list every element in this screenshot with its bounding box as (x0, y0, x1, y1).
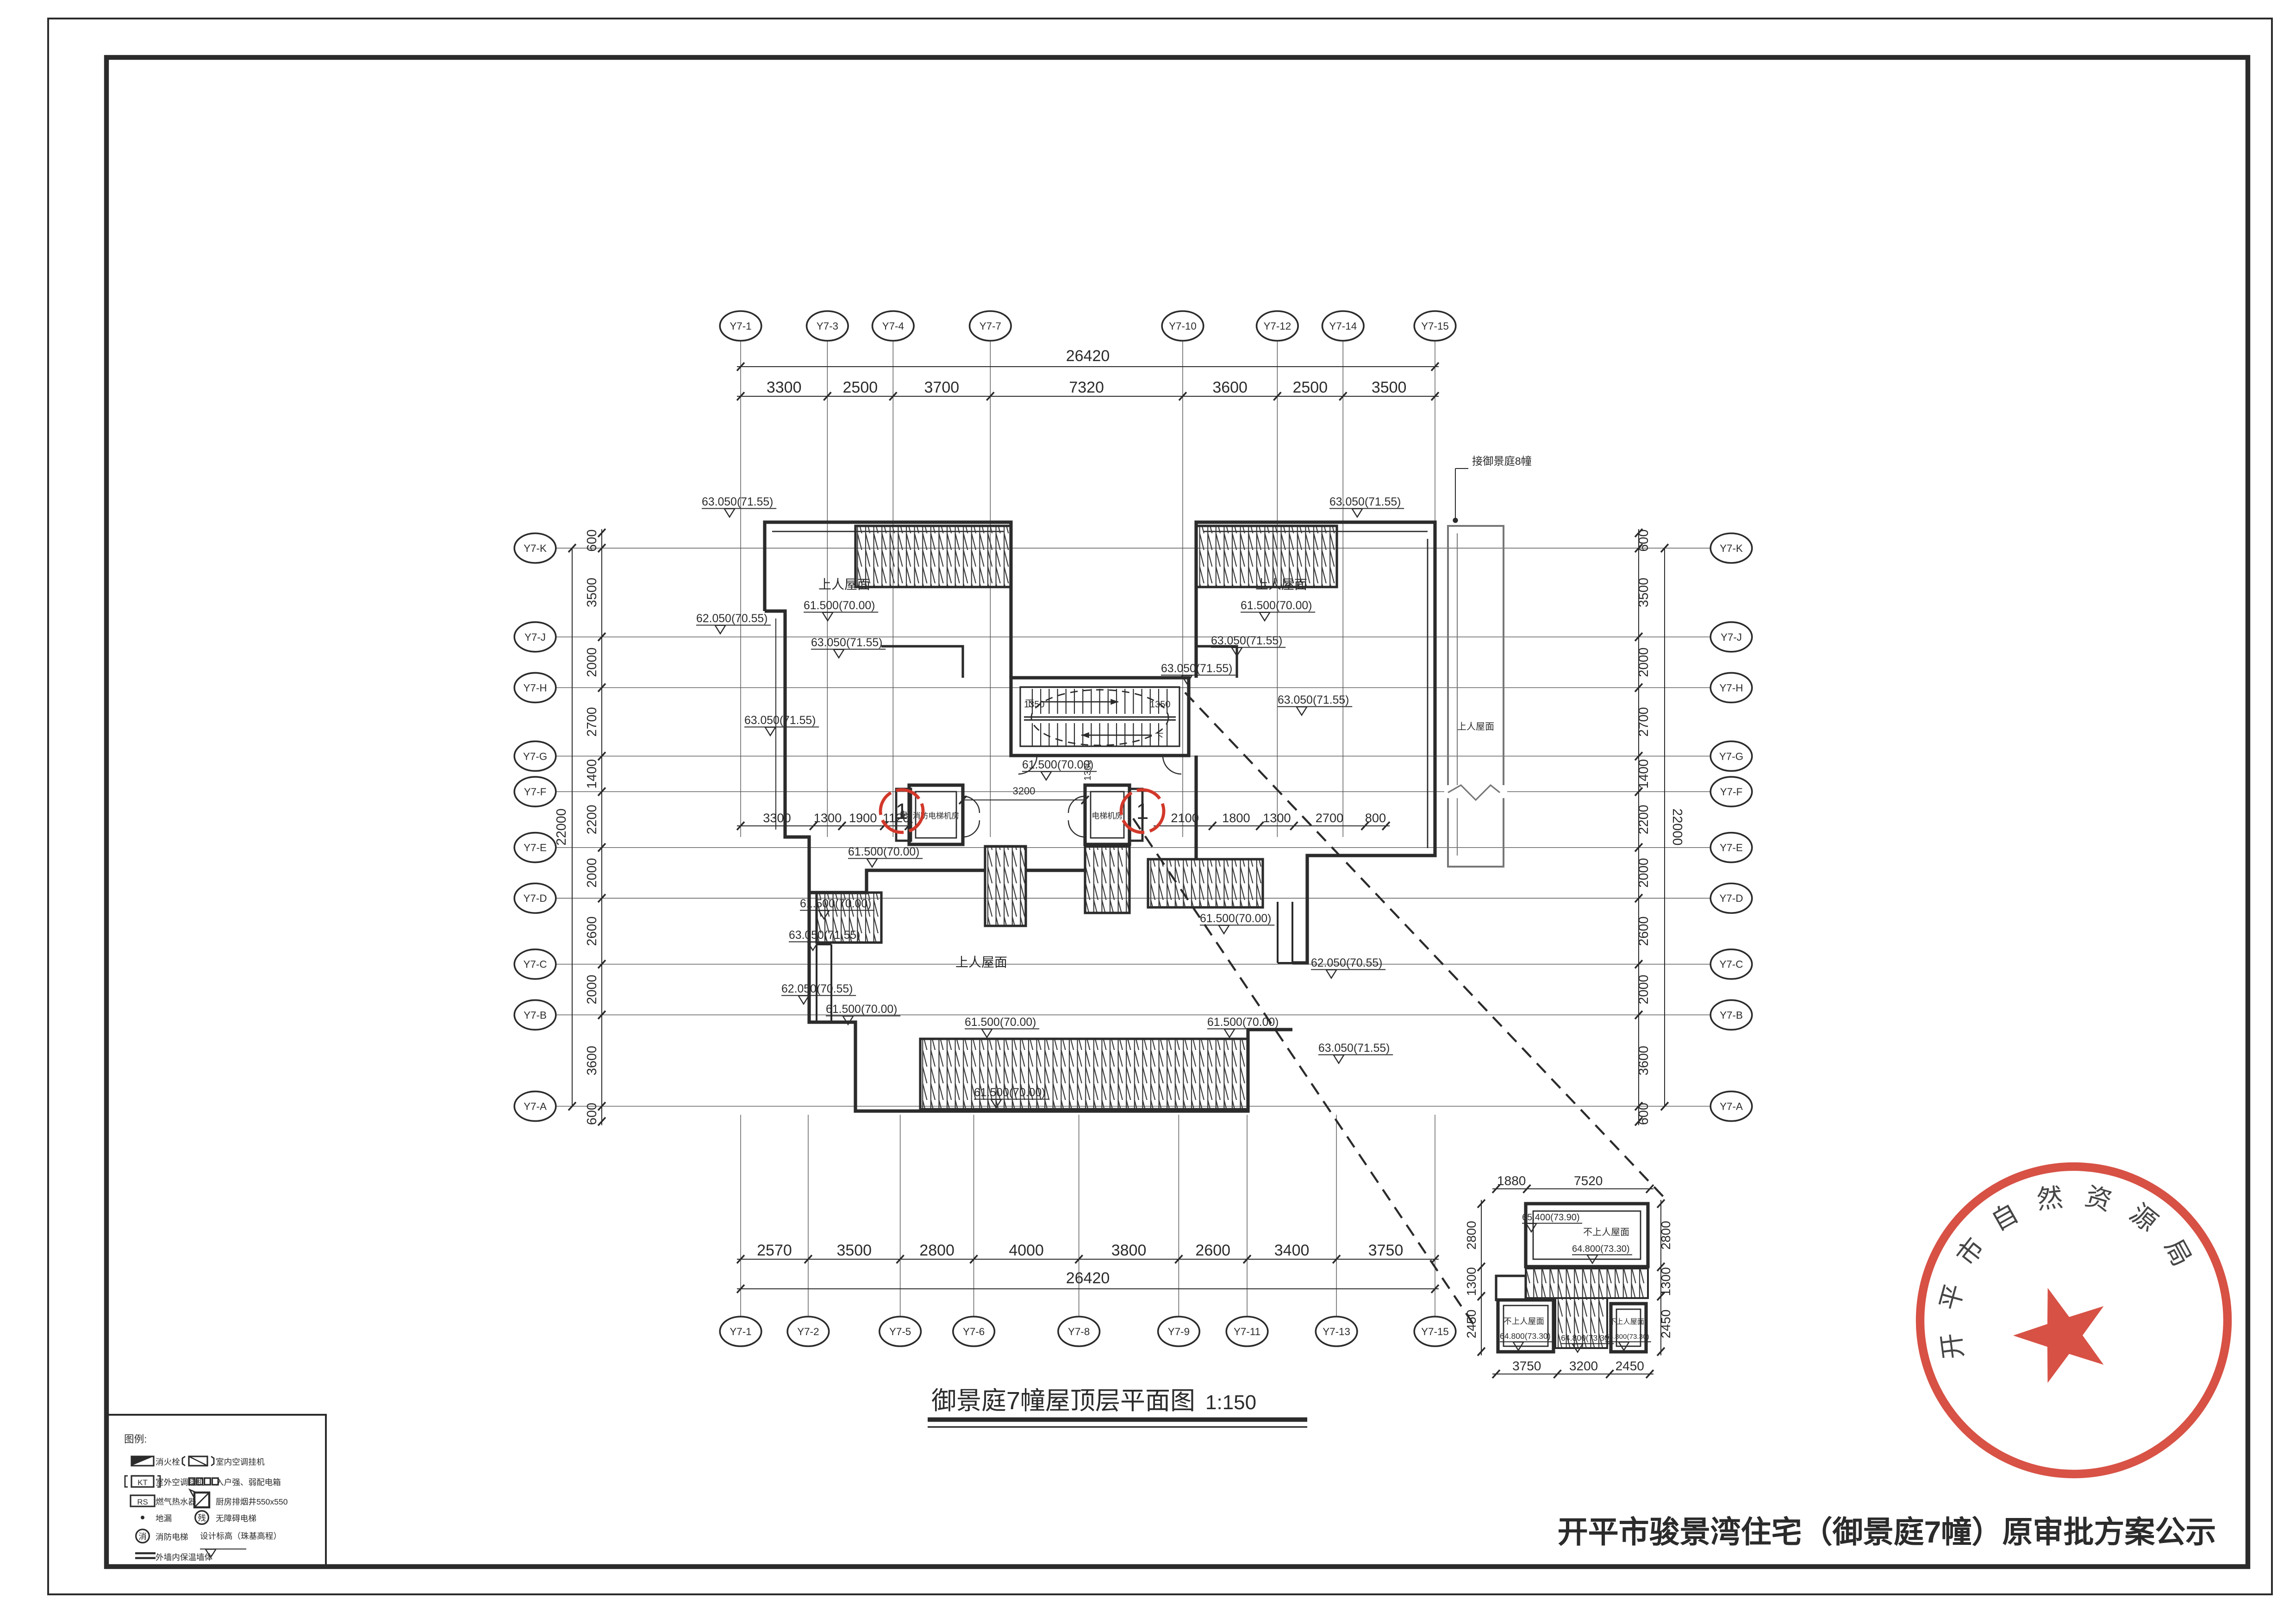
axis-bubble-label: Y7-A (524, 1101, 547, 1112)
elevation-label: 63.050(71.55) (811, 637, 882, 649)
dim-label: 1300 (1263, 811, 1291, 825)
dim-label: 1400 (1636, 759, 1651, 789)
detail-louver-band (1526, 1268, 1648, 1298)
elevation-triangle (1224, 1029, 1235, 1037)
axis-bubble-label: Y7-3 (817, 320, 838, 332)
elevation-label: 61.500(70.00) (974, 1087, 1045, 1099)
axis-bubble-label: Y7-2 (797, 1326, 819, 1337)
dim-label: 3200 (1013, 785, 1036, 797)
legend: 消火栓室内空调挂机KT室外空调挂机入户强、弱配电箱RS燃气热水器厨房排烟井550… (125, 1456, 288, 1562)
elevation-label: 62.050(70.55) (781, 983, 853, 995)
dim-label: 600 (585, 1103, 599, 1125)
dim-label: 3500 (1372, 379, 1407, 396)
marker-1-label: 1 (1136, 800, 1149, 824)
axis-bubble-label: Y7-H (1719, 682, 1743, 693)
dim-label: 26420 (1066, 347, 1110, 365)
dim-label: 600 (585, 530, 599, 552)
elevation-triangle (834, 650, 844, 658)
dim-label: 3600 (1212, 379, 1248, 396)
legend-label: 厨房排烟井550x550 (216, 1497, 288, 1506)
door-swing (1068, 820, 1085, 837)
dim-label: 2700 (1316, 811, 1343, 825)
roof-plan-drawing: Y7-1Y7-3Y7-4Y7-7Y7-10Y7-12Y7-14Y7-15Y7-1… (0, 0, 2296, 1624)
elevation-label: 61.500(70.00) (1207, 1016, 1279, 1029)
dim-label: 1350 (1150, 700, 1171, 710)
dim-label: 4000 (1009, 1242, 1044, 1259)
elevation-label: 61.500(70.00) (848, 846, 919, 858)
machine-rooms: 消防电梯机房电梯机房电320011 (880, 785, 1164, 844)
elevation-triangle (724, 509, 735, 517)
axis-bubble-label: Y7-K (524, 543, 547, 554)
dim-label: 2600 (585, 916, 599, 946)
elevation-triangle (1297, 707, 1307, 715)
dim-label: 1300 (1659, 1267, 1673, 1296)
legend-symbol (141, 1516, 144, 1519)
legend-title: 图例: (124, 1433, 147, 1445)
legend-item-accessible-elevator: 残无障碍电梯 (195, 1511, 256, 1524)
roof-label: 上人屋面 (818, 577, 870, 592)
axis-bubble-label: Y7-E (524, 842, 547, 854)
elevation-label: 64.800(73.30) (1605, 1333, 1649, 1341)
stair-arrowhead (1111, 699, 1118, 705)
dim-label: 2200 (585, 805, 599, 834)
dim-label: 3800 (1111, 1242, 1147, 1259)
axis-bubble-label: Y7-12 (1263, 320, 1291, 332)
door-swing (1068, 796, 1085, 813)
adjacent-building-strip (1448, 526, 1504, 867)
axis-bubble-label: Y7-B (1720, 1009, 1743, 1021)
elevation-label: 63.050(71.55) (1329, 496, 1401, 508)
dim-label: 3400 (1274, 1242, 1310, 1259)
dim-label: 7520 (1574, 1174, 1603, 1188)
elevation-label: 63.050(71.55) (1278, 694, 1349, 706)
axis-bubble-label: Y7-15 (1421, 1326, 1449, 1337)
dim-label: 1300 (814, 811, 842, 825)
dim-label: 1350 (1024, 700, 1045, 710)
legend-label: 无障碍电梯 (216, 1514, 256, 1523)
elevation-label: 63.050(71.55) (744, 714, 816, 727)
elevation-label: 61.500(70.00) (1241, 600, 1312, 612)
elevation-triangle (799, 996, 809, 1004)
elevation-label: 63.050(71.55) (1161, 662, 1232, 675)
dim-label: 2000 (585, 648, 599, 677)
door-swing (963, 820, 980, 837)
dim-label: 2570 (757, 1242, 792, 1259)
axis-bubble-label: Y7-G (1719, 750, 1743, 762)
door-swing (963, 796, 980, 813)
dim-label: 22000 (554, 808, 569, 845)
legend-item-floor-drain: 地漏 (141, 1514, 172, 1523)
elevator-room-label: 电梯机房 (1092, 812, 1123, 820)
elevation-triangle (1219, 925, 1229, 934)
dim-label: 2800 (919, 1242, 955, 1259)
sheet-frame (48, 19, 2272, 1594)
roof-label: 不上人屋面 (1609, 1318, 1644, 1326)
elevation-triangle (1526, 1224, 1536, 1232)
leader-dot (1453, 518, 1458, 523)
dim-label: 600 (1636, 1103, 1651, 1125)
elevation-label: 64.800(73.30) (1572, 1244, 1630, 1254)
dim-label: 1880 (1497, 1174, 1526, 1188)
axis-bubble-label: Y7-B (524, 1009, 547, 1021)
detail-room-inner (1616, 1309, 1641, 1346)
text-label: 残 (198, 1513, 206, 1523)
axis-bubble-label: Y7-11 (1234, 1326, 1260, 1337)
official-stamp: 开平市自然资源局 (1880, 1127, 2268, 1514)
roof-label: 不上人屋面 (1583, 1227, 1629, 1237)
dim-label: 22000 (1670, 808, 1685, 845)
legend-label: 燃气热水器 (156, 1497, 196, 1506)
legend-label: 消火栓 (156, 1457, 180, 1467)
bottom-wing-wall (809, 870, 985, 893)
axis-bubble-label: Y7-13 (1323, 1326, 1350, 1337)
elevation-triangle (765, 727, 775, 736)
roof-label: 上人屋面 (1255, 577, 1307, 592)
dim-label: 3600 (1636, 1046, 1651, 1075)
dim-label: 600 (1636, 530, 1651, 552)
dim-label: 2800 (1464, 1221, 1479, 1249)
plan-labels: 63.050(71.55)63.050(71.55)上人屋面61.500(70.… (696, 496, 1404, 1108)
dim-label: 2000 (1636, 648, 1651, 677)
dim-label: 2500 (1292, 379, 1328, 396)
axis-bubble-label: Y7-5 (889, 1326, 911, 1337)
louver-strip (920, 1039, 1248, 1109)
louver-strip (855, 526, 1011, 587)
line (189, 1456, 207, 1466)
roof-label: 上人屋面 (955, 955, 1007, 969)
louver-strip (985, 846, 1026, 926)
axis-bubble-label: Y7-J (524, 631, 546, 643)
dim-label: 2800 (1659, 1221, 1673, 1249)
path (131, 1456, 154, 1466)
legend-item-hydrant: 消火栓 (131, 1456, 180, 1467)
elevation-label: 61.500(70.00) (804, 600, 875, 612)
elevation-triangle (1334, 1055, 1344, 1063)
dim-label: 3500 (1636, 578, 1651, 607)
elevation-label: 63.050(71.55) (1211, 635, 1282, 647)
elevation-label: 63.050(71.55) (702, 496, 773, 508)
axis-bubble-label: Y7-G (523, 750, 547, 762)
dim-label: 2000 (585, 858, 599, 887)
text-label: 消 (138, 1532, 147, 1541)
axis-bubble-label: Y7-F (524, 786, 547, 798)
elevation-label: 61.500(70.00) (800, 898, 871, 910)
elevation-label: 63.050(71.55) (789, 929, 860, 942)
section-line (1185, 693, 1666, 1200)
dim-label: 2600 (1195, 1242, 1230, 1259)
axis-bubble-label: Y7-K (1720, 543, 1743, 554)
rect (205, 1478, 211, 1485)
legend-label: 入户强、弱配电箱 (216, 1478, 281, 1487)
dim-label: 2700 (1636, 707, 1651, 737)
axis-bubble-label: Y7-4 (882, 320, 904, 332)
roof-label: 不上人屋面 (1504, 1317, 1544, 1326)
legend-label: 外墙内保温墙体 (156, 1553, 213, 1562)
elevation-label: 61.500(70.00) (1022, 759, 1093, 771)
dim-label: 3500 (836, 1242, 872, 1259)
axis-bubble-label: Y7-9 (1168, 1326, 1190, 1337)
legend-label: 设计标高（珠基高程） (200, 1531, 281, 1541)
left-wing-wall (765, 611, 809, 893)
elevation-triangle (867, 859, 877, 867)
title-block: 御景庭7幢屋顶层平面图 1:150 开平市骏景湾住宅（御景庭7幢）原审批方案公示… (124, 455, 2216, 1549)
dim-label: 2000 (585, 974, 599, 1004)
elevation-label: 62.050(70.55) (696, 612, 767, 625)
dim-label: 3600 (585, 1046, 599, 1075)
dim-label: 800 (1365, 811, 1386, 825)
dim-label: 2450 (1464, 1310, 1479, 1338)
elevation-label: 65.400(73.90) (1522, 1212, 1580, 1223)
line (194, 1493, 209, 1507)
dim-label: 3200 (1569, 1359, 1598, 1373)
axis-bubble-label: Y7-1 (730, 320, 751, 332)
elevation-triangle (1352, 509, 1362, 517)
axis-bubble-label: Y7-F (1720, 786, 1743, 798)
elevation-label: 61.500(70.00) (1200, 912, 1271, 925)
dim-label: 2000 (1636, 974, 1651, 1004)
detail-room-wall (1498, 1300, 1554, 1352)
stamp-star (2003, 1273, 2121, 1388)
dim-label: 3300 (767, 379, 802, 396)
legend-item-kitchen-shaft: 厨房排烟井550x550 (190, 1490, 288, 1507)
elevation-triangle (1326, 970, 1336, 978)
outer-border (48, 19, 2272, 1594)
legend-item-ac-indoor: 室内空调挂机 (182, 1456, 265, 1467)
axis-bubble-label: Y7-D (1719, 893, 1743, 904)
dim-label: 3700 (924, 379, 960, 396)
legend-label: 室内空调挂机 (216, 1457, 265, 1467)
axis-bubble-label: Y7-D (523, 893, 547, 904)
text-label: KT (137, 1478, 147, 1487)
dim-label: 1900 (849, 811, 877, 825)
axis-bubble-label: Y7-C (523, 959, 547, 970)
axis-bubble-label: Y7-15 (1421, 320, 1449, 332)
dim-label: 7320 (1069, 379, 1104, 396)
dim-label: 2600 (1636, 916, 1651, 946)
elevation-triangle (715, 625, 725, 634)
dim-label: 1800 (1222, 811, 1250, 825)
louver-strip (1148, 859, 1263, 907)
dim-label: 1400 (585, 759, 599, 789)
stair-down-label: 下 (1154, 732, 1163, 742)
dim-label: 3750 (1512, 1359, 1541, 1373)
elevation-triangle (1260, 612, 1270, 621)
axis-bubble-label: Y7-H (523, 682, 547, 693)
door-swing (1163, 756, 1181, 774)
dim-label: 3300 (763, 811, 791, 825)
legend-label: 地漏 (156, 1514, 172, 1523)
legend-label: 消防电梯 (156, 1532, 188, 1542)
axis-bubble-label: Y7-14 (1329, 320, 1357, 332)
axis-bubble-label: Y7-10 (1169, 320, 1197, 332)
louver-strip (1085, 846, 1129, 913)
marker-1-label: 1 (896, 800, 908, 824)
elevation-label: 64.800(73.30) (1561, 1333, 1612, 1343)
legend-item-gas-heater: RS燃气热水器 (131, 1495, 196, 1506)
dim-label: 3500 (585, 578, 599, 607)
plan-scale: 1:150 (1205, 1391, 1256, 1414)
drawing-sheet: Y7-1Y7-3Y7-4Y7-7Y7-10Y7-12Y7-14Y7-15Y7-1… (0, 0, 2296, 1624)
axis-bubble-label: Y7-C (1719, 959, 1743, 970)
detail-protrusion (1496, 1276, 1526, 1300)
dim-label: 2450 (1659, 1310, 1673, 1338)
dim-label: 1300 (1464, 1267, 1479, 1296)
elevation-label: 64.800(73.30) (1500, 1331, 1551, 1341)
text-label: RS (137, 1498, 148, 1506)
axis-bubble-label: Y7-8 (1068, 1326, 1090, 1337)
detail-plan: 不上人屋面64.800(73.30)65.400(73.90)不上人屋面64.8… (1464, 1174, 1673, 1378)
dim-label: 2500 (843, 379, 878, 396)
elevation-label: 61.500(70.00) (826, 1003, 897, 1016)
axis-bubble-label: Y7-J (1721, 631, 1742, 643)
roof-label: 上人屋面 (1457, 721, 1494, 732)
axis-bubble-label: Y7-1 (730, 1326, 751, 1337)
dim-label: 2700 (585, 707, 599, 737)
elevation-label: 63.050(71.55) (1318, 1042, 1390, 1055)
dim-label: 26420 (1066, 1269, 1110, 1287)
legend-item-insulated-wall: 外墙内保温墙体 (135, 1553, 213, 1562)
axis-bubble-label: Y7-7 (980, 320, 1001, 332)
page-title: 御景庭7幢屋顶层平面图 (931, 1387, 1195, 1415)
dim-label: 2000 (1636, 858, 1651, 887)
notice-title: 开平市骏景湾住宅（御景庭7幢）原审批方案公示 (1558, 1515, 2216, 1549)
dim-label: 2200 (1636, 805, 1651, 834)
parapet-notch (881, 646, 963, 678)
fire-elevator-room-label: 消防电梯机房 (913, 812, 960, 820)
note-adjacent-building: 接御景庭8幢 (1472, 455, 1532, 467)
legend-item-fire-elevator: 消消防电梯 (136, 1530, 188, 1543)
dim-label: 3750 (1368, 1242, 1404, 1259)
elevation-label: 62.050(70.55) (1311, 957, 1382, 969)
elevation-triangle (1041, 772, 1051, 780)
dim-label: 2450 (1616, 1359, 1644, 1373)
elevation-triangle (982, 1029, 992, 1037)
axis-bubble-label: Y7-6 (963, 1326, 985, 1337)
axis-bubble-label: Y7-E (1720, 842, 1743, 854)
axis-bubble-label: Y7-A (1720, 1101, 1743, 1112)
elevation-label: 61.500(70.00) (965, 1016, 1036, 1029)
generated-drawing: Y7-1Y7-3Y7-4Y7-7Y7-10Y7-12Y7-14Y7-15Y7-1… (48, 19, 2272, 1594)
